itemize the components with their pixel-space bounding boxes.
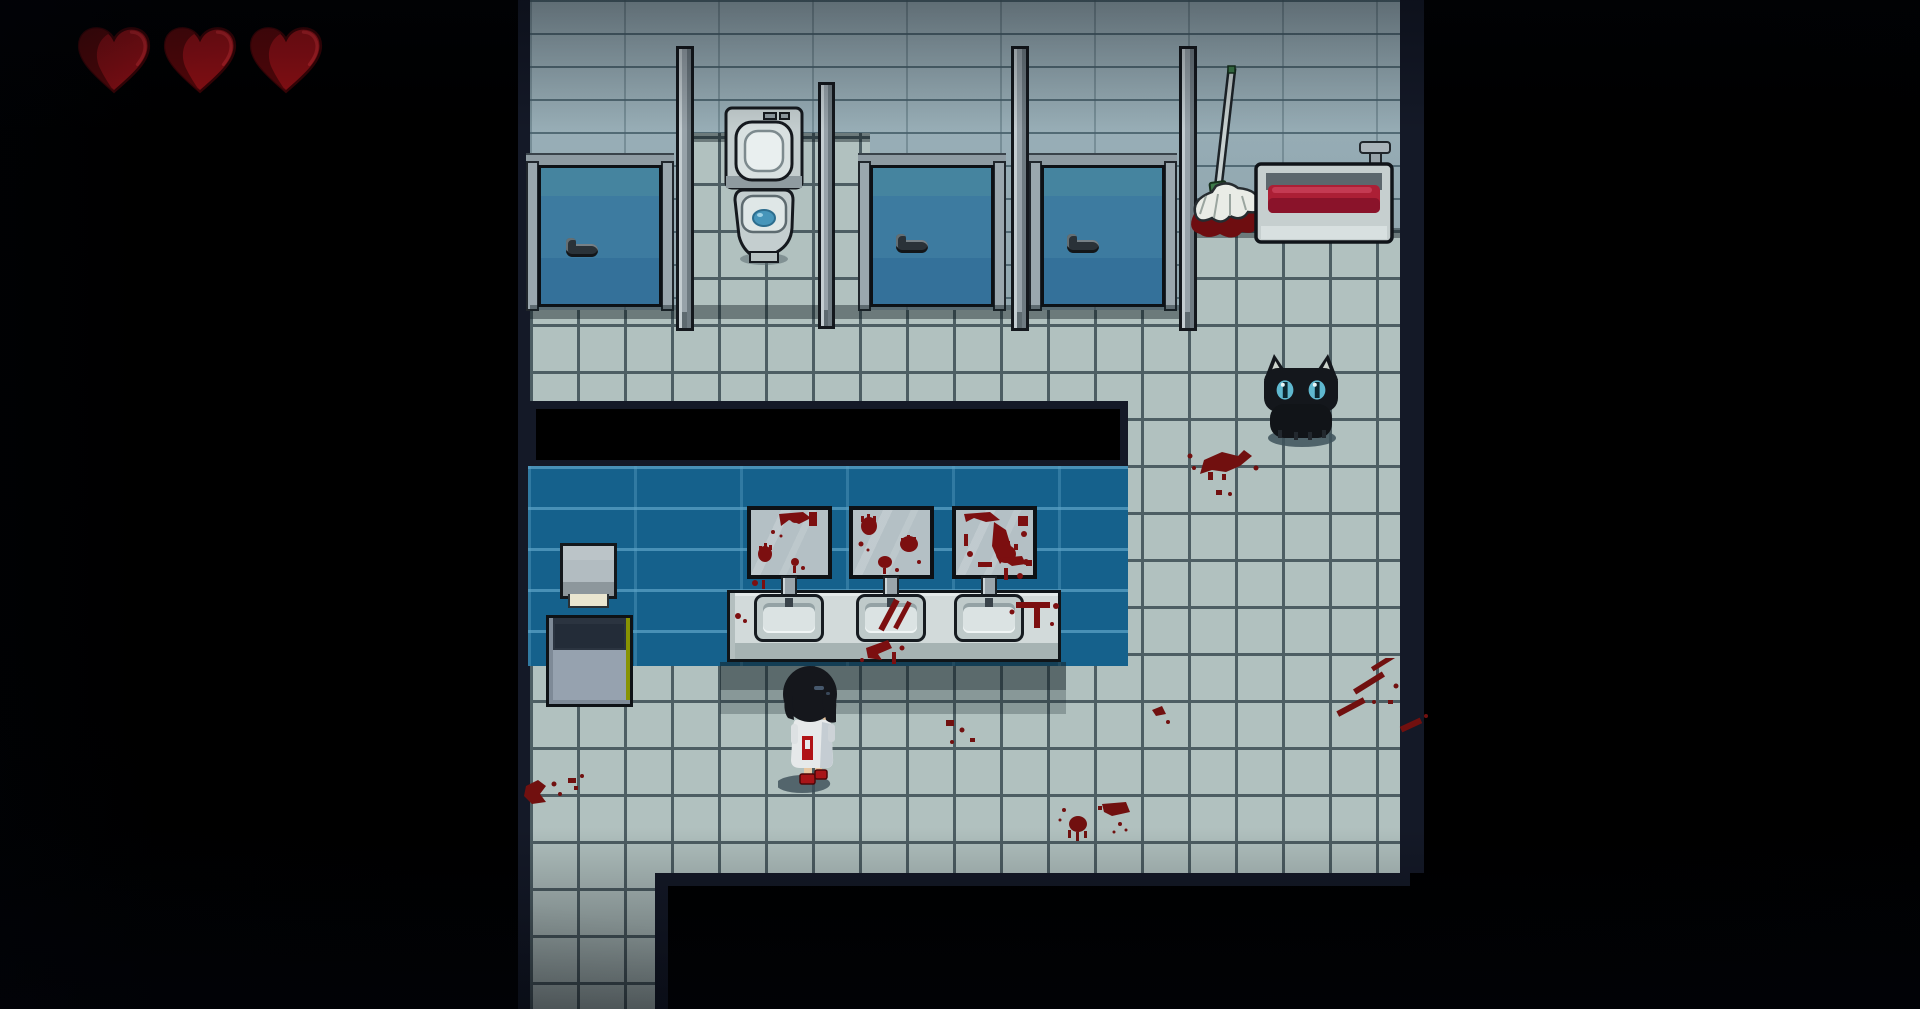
partition-post (676, 46, 694, 331)
blood-streak-decal (1008, 594, 1066, 636)
stall-frame-right (1164, 161, 1177, 311)
exit-corridor-floor (530, 885, 660, 1009)
mirror-middle[interactable] (849, 506, 934, 579)
trash-opening (555, 624, 624, 648)
door-handle-icon (1067, 240, 1099, 253)
blood-handprint-decal (1056, 798, 1140, 846)
bottom-void-right (1410, 873, 1920, 1009)
stall-door-right[interactable] (1041, 165, 1165, 307)
tap-end (985, 598, 993, 607)
door-handle-icon (566, 244, 598, 257)
stall-door-middle[interactable] (870, 165, 994, 307)
game-screen (0, 0, 1920, 1009)
stall-right (1029, 153, 1177, 313)
blood-speck-decal (1148, 704, 1174, 728)
stall-middle (858, 153, 1006, 313)
heart-icon (248, 24, 324, 96)
tap-end (785, 598, 793, 607)
stall-frame-right (993, 161, 1006, 311)
blood-speck-decal (940, 714, 990, 754)
stall-base-shadow (530, 305, 1196, 319)
blood-speck-decal (733, 610, 749, 624)
stall-door-left[interactable] (538, 165, 662, 307)
heart-icon (76, 24, 152, 96)
paper-towel-dispenser[interactable] (560, 543, 617, 599)
heart-icon (162, 24, 238, 96)
stall-left (526, 153, 674, 313)
paper-towel (568, 594, 609, 608)
blood-splat-decal (524, 768, 608, 816)
health-hearts (76, 24, 376, 100)
mirror-left[interactable] (747, 506, 832, 579)
black-cat[interactable] (1256, 350, 1348, 450)
toilet[interactable] (714, 106, 814, 268)
partition-post (1011, 46, 1029, 331)
blood-streak-decal (858, 596, 934, 674)
door-handle-icon (896, 240, 928, 253)
sink-basin (763, 603, 815, 633)
partition-post (818, 82, 835, 329)
blood-splat-decal (1182, 446, 1266, 508)
blood-basin[interactable] (1252, 138, 1402, 256)
stall-frame-right (661, 161, 674, 311)
blood-drip-decal (996, 556, 1040, 592)
blood-streaks-decal (1330, 658, 1430, 763)
trash-can[interactable] (546, 615, 633, 707)
doorway-void[interactable] (536, 409, 1120, 460)
player-character[interactable] (778, 662, 850, 804)
